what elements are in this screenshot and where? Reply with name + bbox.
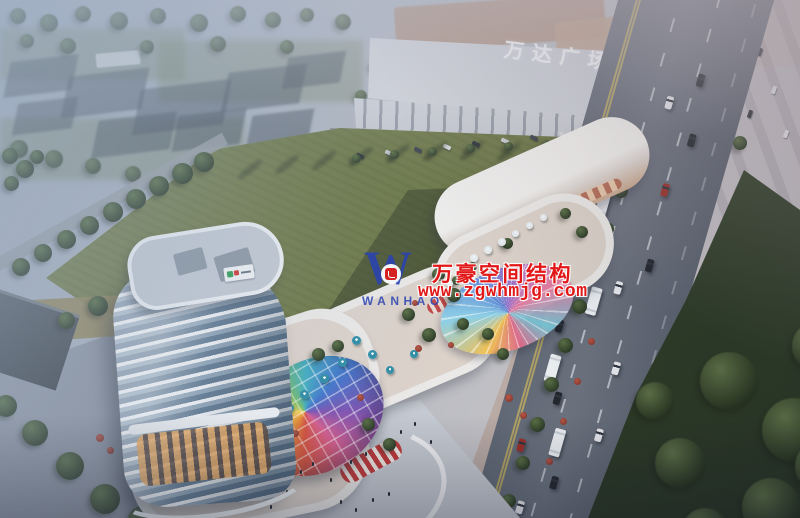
umbrella [386, 366, 394, 374]
tree [103, 202, 123, 222]
car [516, 438, 526, 452]
tree [280, 40, 294, 54]
tree [332, 340, 344, 352]
red-shrub [588, 338, 595, 345]
tree [126, 189, 146, 209]
umbrella [498, 238, 506, 246]
tree [57, 230, 76, 249]
tree [558, 338, 573, 353]
person [400, 430, 402, 434]
person [330, 478, 332, 482]
tree [300, 8, 314, 22]
car [664, 96, 674, 110]
tree [210, 36, 226, 52]
watermark-website-text: www.zgwhmjg.com [418, 282, 588, 302]
person [414, 422, 416, 426]
tree [504, 142, 513, 151]
person [388, 492, 390, 496]
tree [516, 456, 530, 470]
tree [636, 382, 674, 420]
tree [10, 8, 26, 24]
tree [4, 176, 19, 191]
tree [30, 150, 44, 164]
tree [362, 418, 375, 431]
tree [482, 328, 494, 340]
tree [58, 312, 75, 329]
car [515, 500, 525, 514]
umbrella [540, 214, 547, 221]
person [340, 500, 342, 504]
tree [544, 377, 559, 392]
tree [140, 40, 154, 54]
tree [312, 348, 325, 361]
tree [265, 12, 281, 28]
tree [530, 417, 545, 432]
red-shrub [96, 434, 104, 442]
person [430, 440, 432, 444]
person [355, 508, 357, 512]
tree [56, 452, 84, 480]
tree [60, 38, 76, 54]
umbrella [320, 374, 329, 383]
car [611, 361, 621, 375]
tree [390, 150, 399, 159]
tree [2, 148, 18, 164]
red-shrub [520, 412, 527, 419]
tree [335, 14, 351, 30]
red-shrub [357, 394, 364, 401]
car [687, 133, 697, 147]
aerial-rendering-scene: 万达广场 W [0, 0, 800, 518]
tree [12, 258, 30, 276]
umbrella [338, 358, 347, 367]
umbrella [526, 222, 533, 229]
red-shrub [415, 345, 422, 352]
tree [190, 14, 208, 32]
car [549, 476, 559, 490]
tree [428, 147, 437, 156]
tree [422, 328, 436, 342]
tree [457, 318, 469, 330]
person [312, 462, 314, 466]
tree [733, 136, 747, 150]
umbrella [352, 336, 361, 345]
red-shrub [560, 418, 567, 425]
person [350, 460, 352, 464]
tree [34, 244, 52, 262]
tree [22, 420, 48, 446]
car [613, 281, 623, 295]
person [270, 505, 272, 509]
tree [45, 150, 63, 168]
tree [700, 352, 758, 410]
tree [16, 160, 34, 178]
tree [75, 6, 91, 22]
watermark-logo-circle [381, 264, 401, 284]
person [372, 498, 374, 502]
tree [80, 216, 99, 235]
person [365, 452, 367, 456]
tree [466, 144, 475, 153]
watermark: W WANHAO 万豪空间结构 www.zgwhmjg.com [362, 246, 582, 314]
watermark-logo-glyph [385, 268, 397, 280]
red-shrub [107, 447, 114, 454]
red-shrub [505, 394, 513, 402]
tree [172, 163, 193, 184]
car [660, 183, 670, 197]
car [552, 391, 562, 405]
tree [497, 348, 509, 360]
tree [383, 438, 396, 451]
umbrella [300, 390, 309, 399]
tree [194, 152, 214, 172]
tree [88, 296, 108, 316]
tree [560, 208, 571, 219]
tree [576, 226, 588, 238]
umbrella [512, 230, 519, 237]
tree [85, 158, 101, 174]
red-shrub [448, 342, 454, 348]
car [644, 258, 654, 272]
tree [352, 154, 361, 163]
tree [149, 176, 169, 196]
tree [230, 6, 246, 22]
tree [655, 438, 705, 488]
tree [150, 8, 166, 24]
bus [548, 428, 566, 458]
roof-equipment [173, 247, 208, 276]
red-shrub [546, 458, 553, 465]
red-shrub [574, 378, 581, 385]
umbrella [368, 350, 377, 359]
tree [20, 34, 34, 48]
tree [40, 14, 58, 32]
tree [110, 12, 128, 30]
